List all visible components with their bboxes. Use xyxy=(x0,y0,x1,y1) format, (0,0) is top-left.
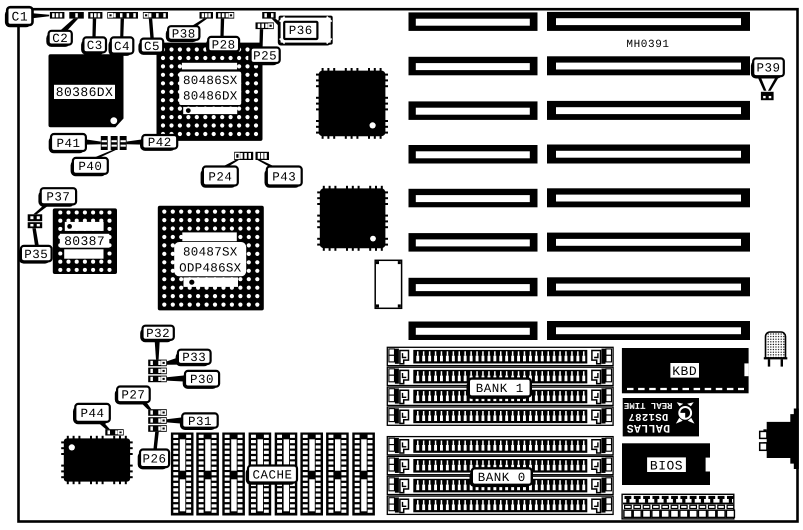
svg-text:DS1287: DS1287 xyxy=(628,410,668,422)
svg-text:P28: P28 xyxy=(212,38,236,52)
svg-text:P31: P31 xyxy=(188,415,212,429)
svg-text:MH0391: MH0391 xyxy=(626,39,669,51)
svg-text:P25: P25 xyxy=(253,50,277,64)
svg-text:80387: 80387 xyxy=(64,234,105,249)
svg-text:P26: P26 xyxy=(143,453,167,467)
svg-text:C1: C1 xyxy=(12,9,29,24)
svg-text:C4: C4 xyxy=(114,40,130,54)
svg-text:REAL TIME: REAL TIME xyxy=(623,400,672,410)
svg-text:P37: P37 xyxy=(46,191,70,205)
svg-text:80486DX: 80486DX xyxy=(183,90,238,104)
svg-text:P42: P42 xyxy=(148,136,172,150)
svg-text:P44: P44 xyxy=(81,407,105,421)
svg-text:P32: P32 xyxy=(146,327,170,341)
svg-text:BANK 1: BANK 1 xyxy=(476,382,524,396)
svg-text:BANK 0: BANK 0 xyxy=(478,471,526,485)
svg-text:80486SX: 80486SX xyxy=(183,74,238,88)
svg-text:P24: P24 xyxy=(208,170,232,184)
svg-text:BIOS: BIOS xyxy=(650,458,683,473)
svg-text:P30: P30 xyxy=(190,373,214,387)
svg-text:P33: P33 xyxy=(182,351,206,365)
svg-text:P41: P41 xyxy=(56,137,80,151)
svg-text:P27: P27 xyxy=(121,389,145,403)
svg-text:P39: P39 xyxy=(756,62,780,76)
svg-text:P35: P35 xyxy=(24,248,48,262)
svg-text:ODP486SX: ODP486SX xyxy=(179,262,242,276)
svg-text:80487SX: 80487SX xyxy=(183,246,238,260)
svg-text:CACHE: CACHE xyxy=(252,468,292,482)
svg-text:P40: P40 xyxy=(78,160,102,174)
svg-text:80386DX: 80386DX xyxy=(56,85,113,100)
svg-text:P36: P36 xyxy=(289,24,313,38)
svg-text:KBD: KBD xyxy=(672,364,697,379)
svg-text:C5: C5 xyxy=(144,40,160,54)
svg-text:C3: C3 xyxy=(87,39,103,53)
svg-text:P38: P38 xyxy=(172,27,196,41)
svg-text:C2: C2 xyxy=(52,32,68,46)
svg-text:P43: P43 xyxy=(272,170,296,184)
